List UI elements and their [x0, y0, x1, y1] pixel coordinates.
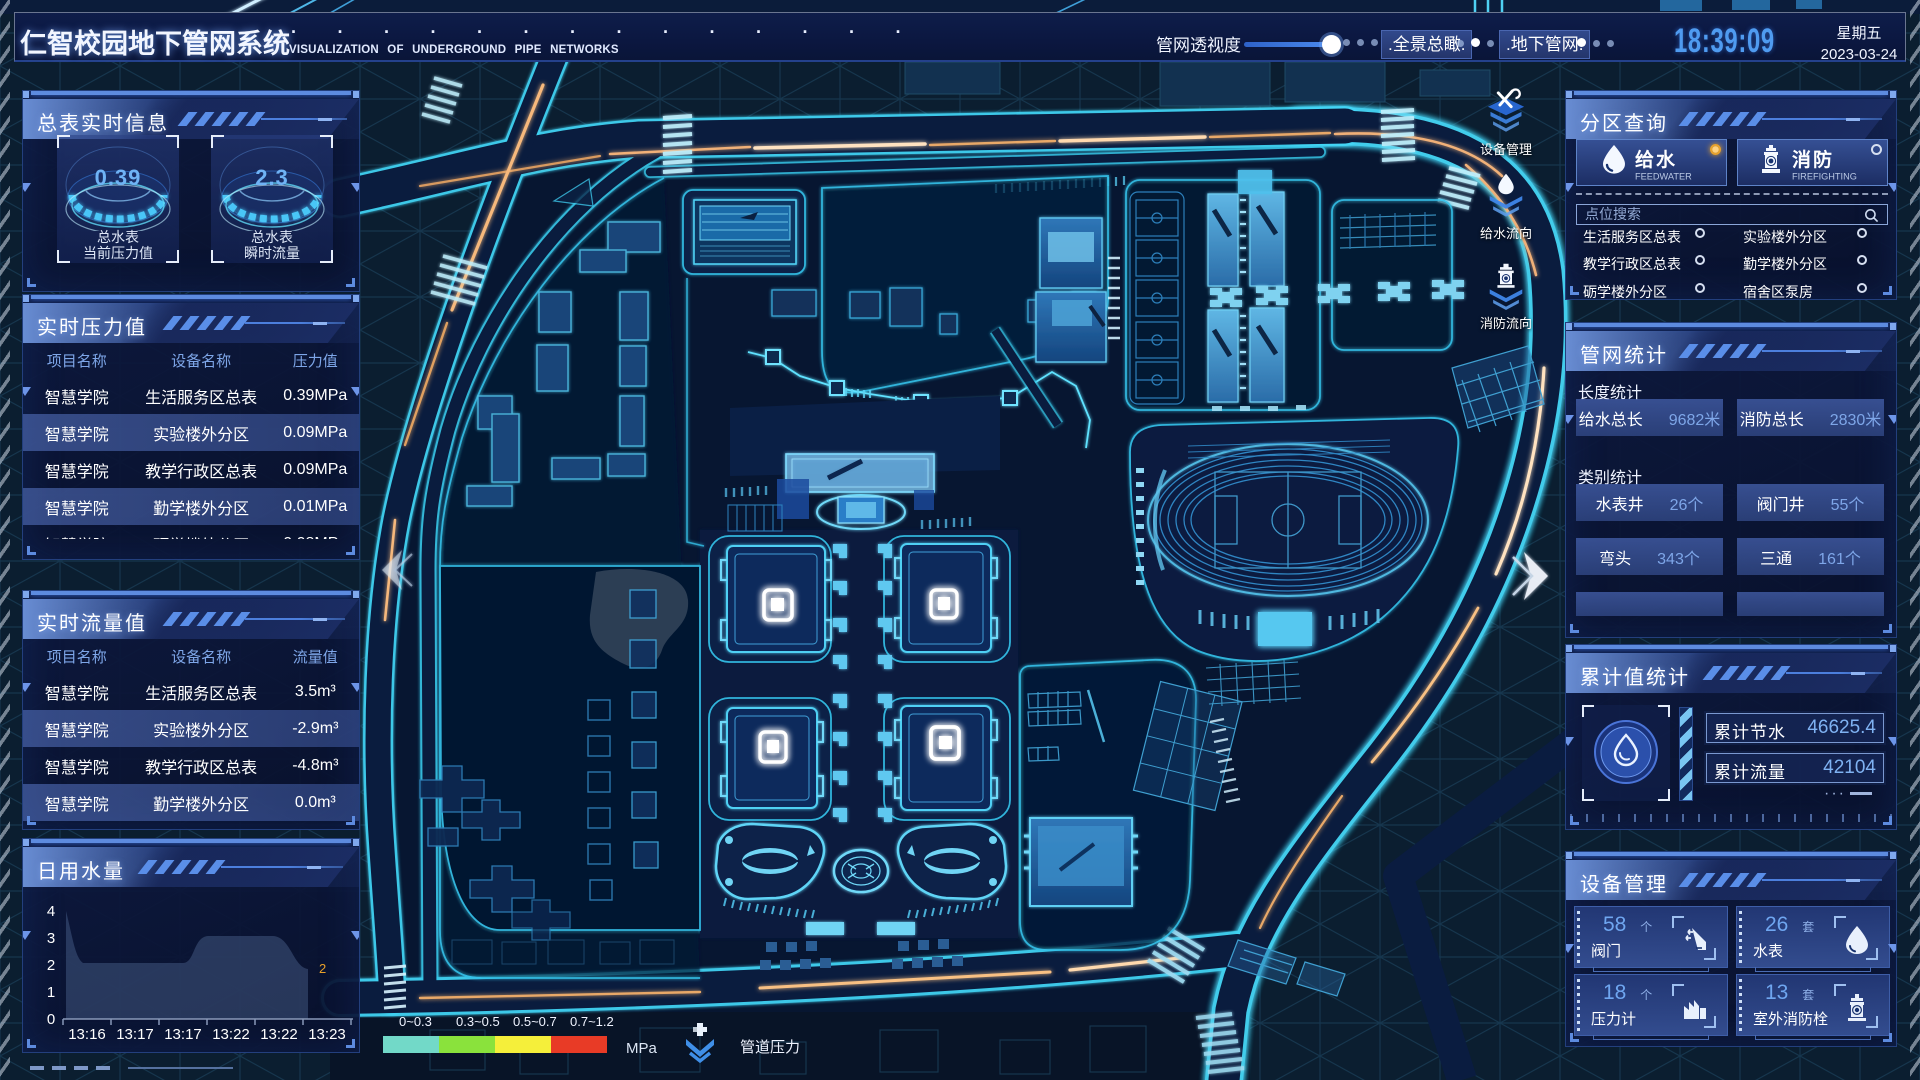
svg-text:1: 1 — [47, 984, 55, 1001]
svg-text:2: 2 — [319, 961, 326, 976]
svg-text:13:22: 13:22 — [212, 1026, 250, 1043]
svg-text:13:16: 13:16 — [68, 1026, 106, 1043]
svg-text:13:17: 13:17 — [164, 1026, 202, 1043]
svg-text:3: 3 — [47, 930, 55, 947]
svg-text:0: 0 — [47, 1011, 55, 1028]
svg-text:13:17: 13:17 — [116, 1026, 154, 1043]
svg-text:2: 2 — [47, 957, 55, 974]
svg-text:13:22: 13:22 — [260, 1026, 298, 1043]
svg-text:13:23: 13:23 — [308, 1026, 346, 1043]
svg-text:4: 4 — [47, 903, 55, 920]
